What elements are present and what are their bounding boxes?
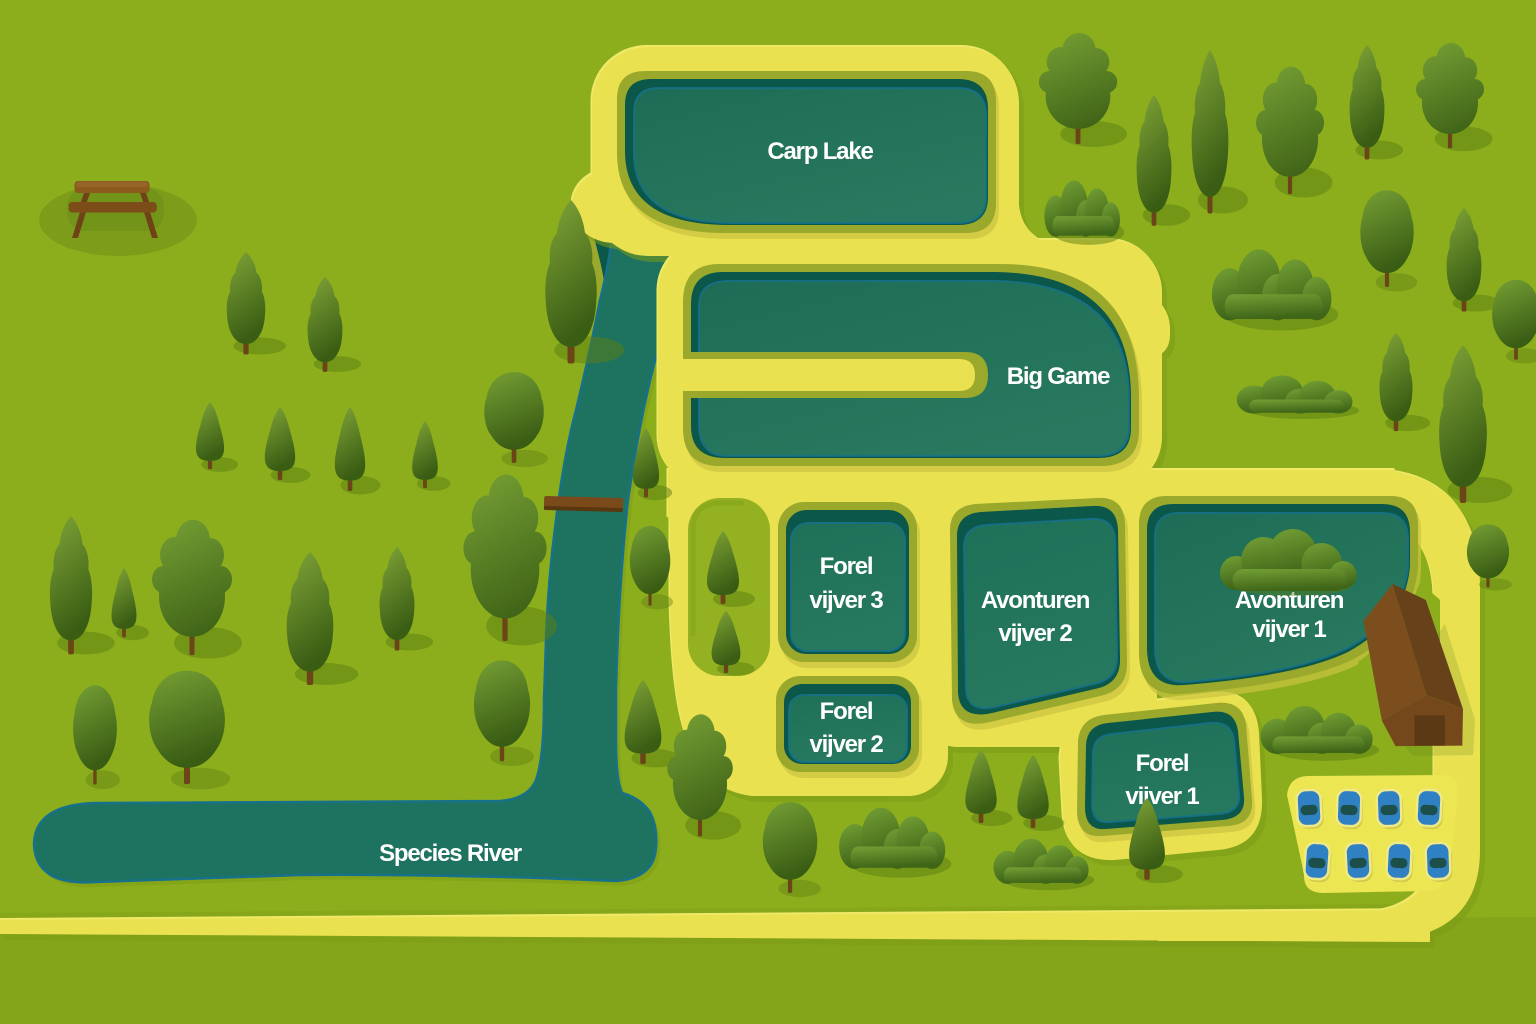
svg-text:vijver 2: vijver 2 [809, 731, 883, 758]
svg-text:Forel: Forel [820, 698, 873, 725]
svg-text:vijver 3: vijver 3 [809, 587, 883, 614]
svg-text:Avonturen: Avonturen [981, 587, 1090, 614]
svg-text:Forel: Forel [820, 553, 873, 580]
svg-text:Species River: Species River [379, 840, 522, 867]
svg-text:vijver 1: vijver 1 [1125, 783, 1199, 810]
svg-text:Carp Lake: Carp Lake [767, 138, 873, 165]
svg-text:vijver 1: vijver 1 [1252, 616, 1326, 643]
svg-text:vijver 2: vijver 2 [998, 620, 1072, 647]
svg-text:Big Game: Big Game [1007, 363, 1110, 390]
svg-text:Forel: Forel [1136, 750, 1189, 777]
